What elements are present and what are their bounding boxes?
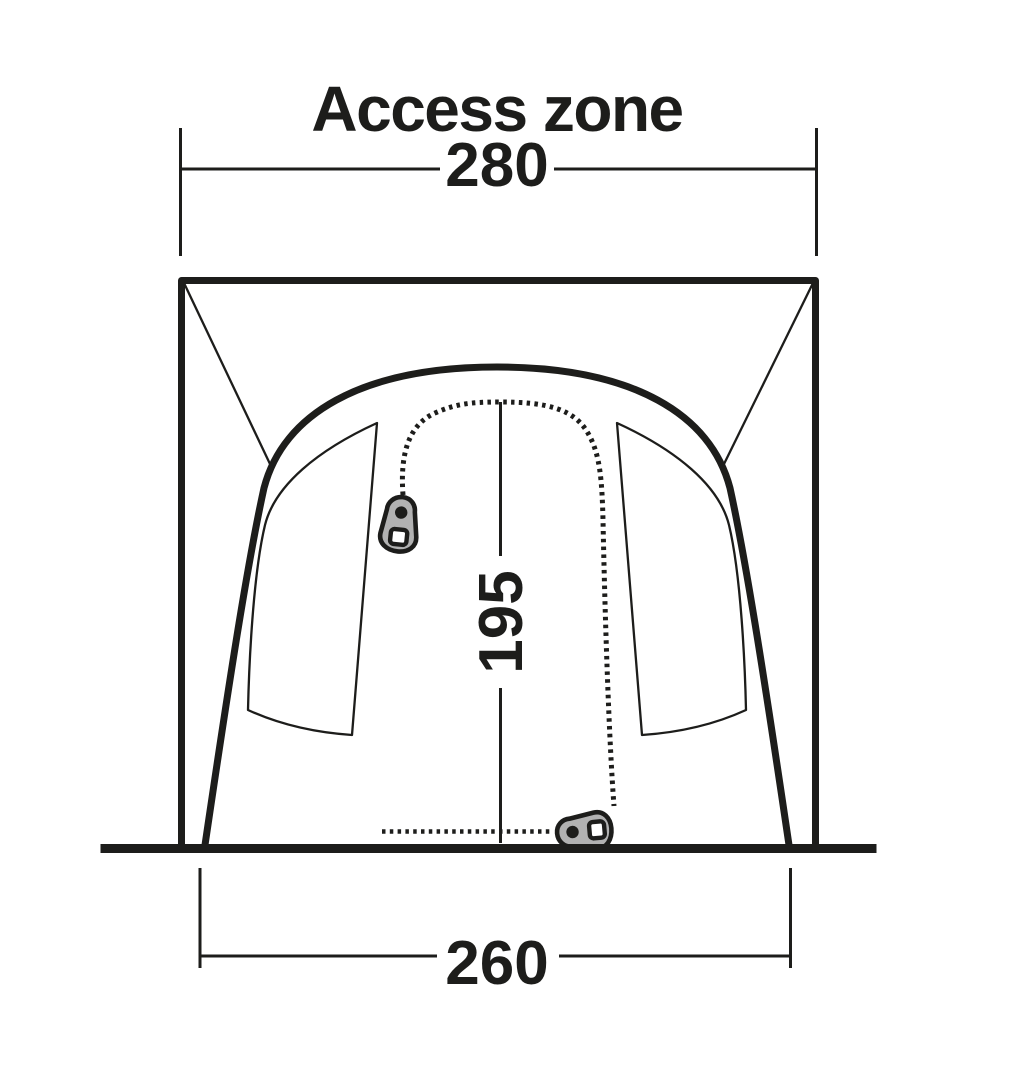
zipper-pull-hole <box>390 529 408 546</box>
top-width-dimension: 280 <box>181 128 817 256</box>
fold-line-left <box>184 283 270 464</box>
tent-access-zone-diagram: Access zone 280 <box>0 0 1016 1080</box>
diagram-page: Access zone 280 <box>0 0 1016 1080</box>
fold-line-right <box>724 283 813 464</box>
zipper-pull-hole <box>589 821 605 839</box>
door-height-dimension: 195 <box>467 402 536 843</box>
tent-drawing <box>105 281 872 852</box>
bottom-width-dimension: 260 <box>200 868 791 998</box>
top-width-value: 280 <box>445 131 548 200</box>
door-height-value: 195 <box>467 570 536 673</box>
bottom-width-value: 260 <box>445 929 548 998</box>
zipper-pull-top <box>379 495 421 553</box>
